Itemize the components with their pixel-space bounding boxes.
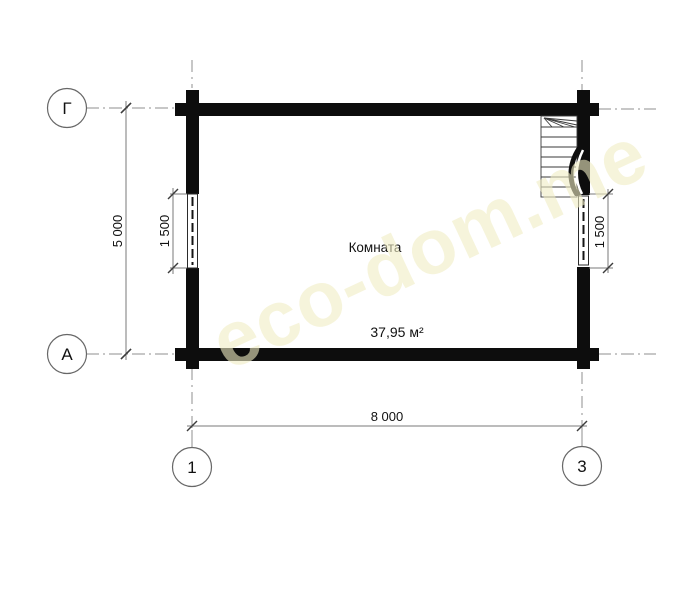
axis-bubbles: Г А 1 3 <box>48 89 602 487</box>
wall-left-lower <box>186 268 199 361</box>
wall-left-upper <box>186 103 199 194</box>
axis-label-row-bottom: А <box>61 345 73 364</box>
log-end-top-right-vertical <box>577 90 590 103</box>
dimension-text-1500-right: 1 500 <box>592 216 607 249</box>
dimension-left-window: 1 500 <box>157 188 187 274</box>
log-end-bottom-right-horizontal <box>590 348 599 361</box>
room-name-label: Комната <box>349 240 402 255</box>
log-end-top-left-vertical <box>186 90 199 103</box>
stairs <box>541 116 583 197</box>
log-end-top-right-horizontal <box>590 103 599 116</box>
dimension-overall-height: 5 000 <box>110 101 131 360</box>
room-area-label: 37,95 м² <box>370 324 424 340</box>
log-end-bottom-left-vertical <box>186 361 199 369</box>
dimension-text-5000: 5 000 <box>110 215 125 248</box>
window-left <box>188 194 198 268</box>
dimension-right-window: 1 500 <box>589 189 613 273</box>
wall-bottom <box>186 348 590 361</box>
dimension-text-8000: 8 000 <box>371 409 404 424</box>
log-end-bottom-left-horizontal <box>175 348 186 361</box>
stair-winder-fan <box>544 118 577 127</box>
axis-label-col-left: 1 <box>187 458 196 477</box>
wall-top <box>186 103 590 116</box>
log-end-bottom-right-vertical <box>577 361 590 369</box>
dimension-overall-width: 8 000 <box>187 409 587 431</box>
floor-plan-drawing: 5 000 1 500 1 500 8 000 <box>0 0 687 600</box>
window-right <box>579 196 589 265</box>
axis-label-col-right: 3 <box>577 457 586 476</box>
log-end-top-left-horizontal <box>175 103 186 116</box>
floor-plan-canvas: 5 000 1 500 1 500 8 000 <box>0 0 687 600</box>
dimension-text-1500-left: 1 500 <box>157 215 172 248</box>
wall-right-lower <box>577 267 590 361</box>
axis-label-row-top: Г <box>62 99 71 118</box>
